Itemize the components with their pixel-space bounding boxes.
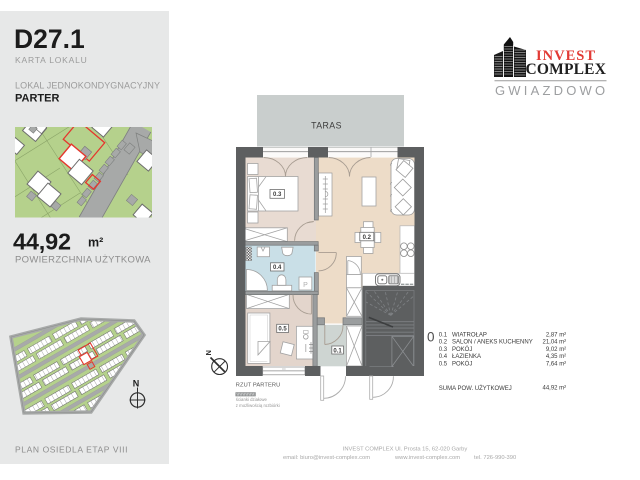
svg-text:0.5: 0.5 bbox=[439, 361, 448, 367]
svg-text:COMPLEX: COMPLEX bbox=[526, 61, 607, 78]
svg-text:0.4: 0.4 bbox=[439, 354, 448, 360]
svg-text:LOKAL JEDNOKONDYGNACYJNY: LOKAL JEDNOKONDYGNACYJNY bbox=[15, 81, 160, 91]
svg-text:9,02 m²: 9,02 m² bbox=[546, 347, 566, 353]
svg-text:GWIAZDOWO: GWIAZDOWO bbox=[495, 83, 608, 98]
svg-text:2,87 m²: 2,87 m² bbox=[546, 332, 566, 338]
svg-text:44,92 m²: 44,92 m² bbox=[543, 386, 567, 392]
svg-text:m²: m² bbox=[88, 236, 103, 250]
svg-text:tel. 726-990-390: tel. 726-990-390 bbox=[474, 455, 516, 461]
svg-text:21,04 m²: 21,04 m² bbox=[543, 340, 567, 346]
svg-text:SUMA POW. UŻYTKOWEJ: SUMA POW. UŻYTKOWEJ bbox=[439, 385, 512, 392]
svg-text:email: biuro@invest-complex.co: email: biuro@invest-complex.com bbox=[283, 455, 370, 461]
svg-text:SALON / ANEKS KUCHENNY: SALON / ANEKS KUCHENNY bbox=[452, 340, 533, 346]
svg-text:RZUT PARTERU: RZUT PARTERU bbox=[236, 382, 280, 388]
svg-text:POWIERZCHNIA UŻYTKOWA: POWIERZCHNIA UŻYTKOWA bbox=[15, 255, 151, 266]
svg-text:ŁAZIENKA: ŁAZIENKA bbox=[452, 354, 481, 360]
svg-text:PLAN OSIEDLA ETAP VIII: PLAN OSIEDLA ETAP VIII bbox=[15, 445, 128, 455]
svg-text:0.2: 0.2 bbox=[439, 340, 448, 346]
svg-text:0.3: 0.3 bbox=[439, 347, 448, 353]
svg-text:KARTA LOKALU: KARTA LOKALU bbox=[15, 55, 88, 65]
svg-text:INVEST COMPLEX Ul. Prosta 15,: INVEST COMPLEX Ul. Prosta 15, 62-020 Gar… bbox=[343, 447, 468, 453]
svg-text:0.5: 0.5 bbox=[278, 327, 287, 333]
svg-text:TARAS: TARAS bbox=[311, 121, 342, 131]
svg-text:D27.1: D27.1 bbox=[14, 24, 85, 54]
svg-text:POKÓJ: POKÓJ bbox=[452, 360, 472, 367]
svg-text:0.4: 0.4 bbox=[273, 265, 282, 271]
svg-text:WIATROŁAP: WIATROŁAP bbox=[452, 332, 487, 338]
svg-text:www.invest-complex.com: www.invest-complex.com bbox=[394, 455, 460, 461]
svg-text:z możliwością rozbiórki: z możliwością rozbiórki bbox=[236, 403, 280, 408]
svg-text:POKÓJ: POKÓJ bbox=[452, 346, 472, 353]
svg-text:0.1: 0.1 bbox=[333, 348, 342, 354]
svg-text:ścianki działowe: ścianki działowe bbox=[236, 397, 268, 402]
svg-text:0.3: 0.3 bbox=[273, 192, 282, 198]
svg-text:7,64 m²: 7,64 m² bbox=[546, 361, 566, 367]
svg-text:N: N bbox=[133, 379, 140, 389]
svg-text:P: P bbox=[303, 282, 308, 289]
svg-text:0.1: 0.1 bbox=[439, 332, 448, 338]
svg-text:44,92: 44,92 bbox=[13, 229, 71, 255]
svg-text:0.2: 0.2 bbox=[363, 235, 372, 241]
svg-text:4,35 m²: 4,35 m² bbox=[546, 354, 566, 360]
svg-text:N: N bbox=[204, 350, 213, 355]
svg-text:PARTER: PARTER bbox=[15, 93, 59, 105]
svg-text:0: 0 bbox=[427, 329, 435, 344]
